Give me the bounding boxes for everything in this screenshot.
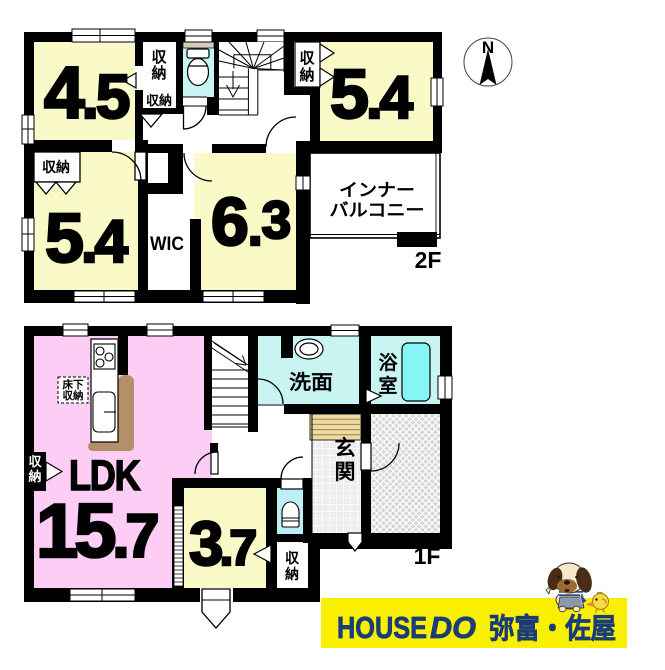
svg-text:3.7: 3.7 (189, 510, 255, 579)
svg-text:2F: 2F (415, 247, 442, 273)
svg-text:インナー: インナー (339, 180, 415, 200)
svg-text:玄: 玄 (335, 436, 356, 460)
svg-text:洗面: 洗面 (289, 371, 333, 394)
svg-text:納: 納 (151, 64, 166, 82)
svg-text:収納: 収納 (146, 93, 172, 108)
svg-text:収: 収 (299, 49, 315, 67)
svg-text:納: 納 (28, 469, 41, 484)
svg-text:納: 納 (299, 66, 314, 84)
svg-text:5.4: 5.4 (330, 55, 414, 133)
svg-text:HOUSE: HOUSE (337, 610, 427, 645)
svg-text:収納: 収納 (42, 159, 70, 175)
svg-text:収: 収 (285, 550, 300, 566)
svg-text:納: 納 (285, 566, 299, 582)
svg-text:弥富・佐屋: 弥富・佐屋 (489, 612, 616, 644)
svg-text:収: 収 (28, 454, 42, 469)
svg-text:バルコニー: バルコニー (330, 200, 425, 220)
svg-text:浴: 浴 (378, 352, 398, 374)
svg-text:WIC: WIC (150, 234, 184, 255)
svg-text:室: 室 (378, 374, 397, 397)
svg-text:関: 関 (335, 461, 356, 484)
svg-text:収納: 収納 (63, 389, 84, 402)
svg-text:4.5: 4.5 (44, 53, 129, 134)
svg-text:5.4: 5.4 (45, 199, 129, 277)
svg-text:DO: DO (430, 610, 476, 645)
svg-text:収: 収 (151, 48, 167, 66)
svg-text:1F: 1F (414, 543, 441, 569)
svg-text:15.7: 15.7 (36, 489, 157, 574)
